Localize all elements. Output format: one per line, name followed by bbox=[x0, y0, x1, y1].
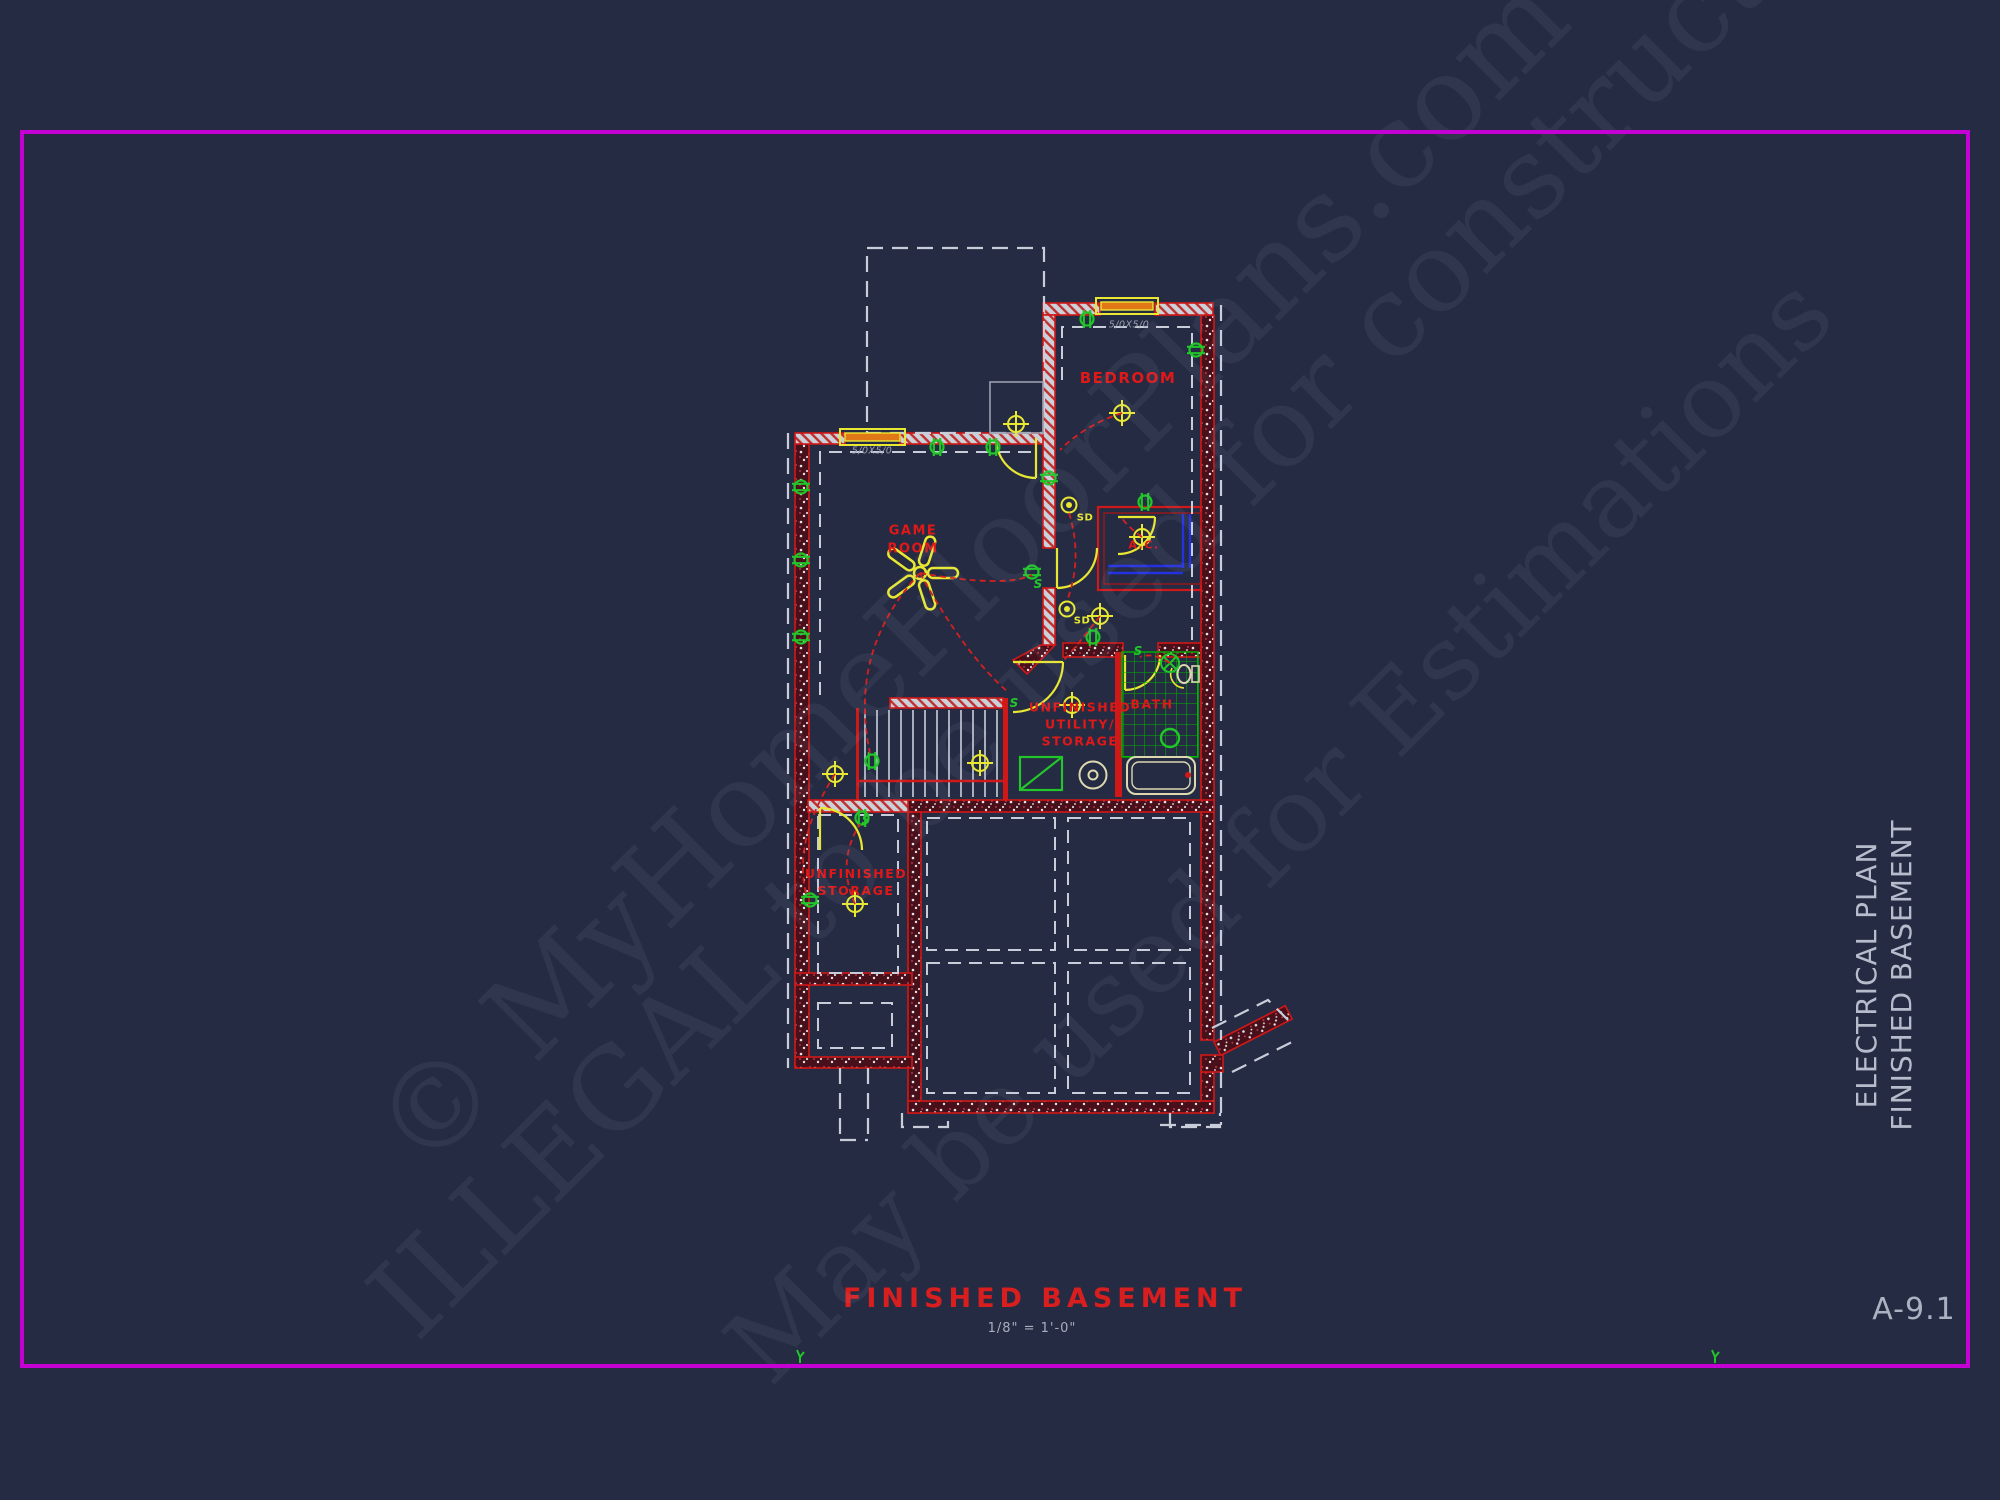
drawing-sheet: BEDROOM GAME ROOM A.C. BATH UNFINISHED U… bbox=[0, 0, 2000, 1500]
sheet-border bbox=[20, 130, 1970, 1368]
